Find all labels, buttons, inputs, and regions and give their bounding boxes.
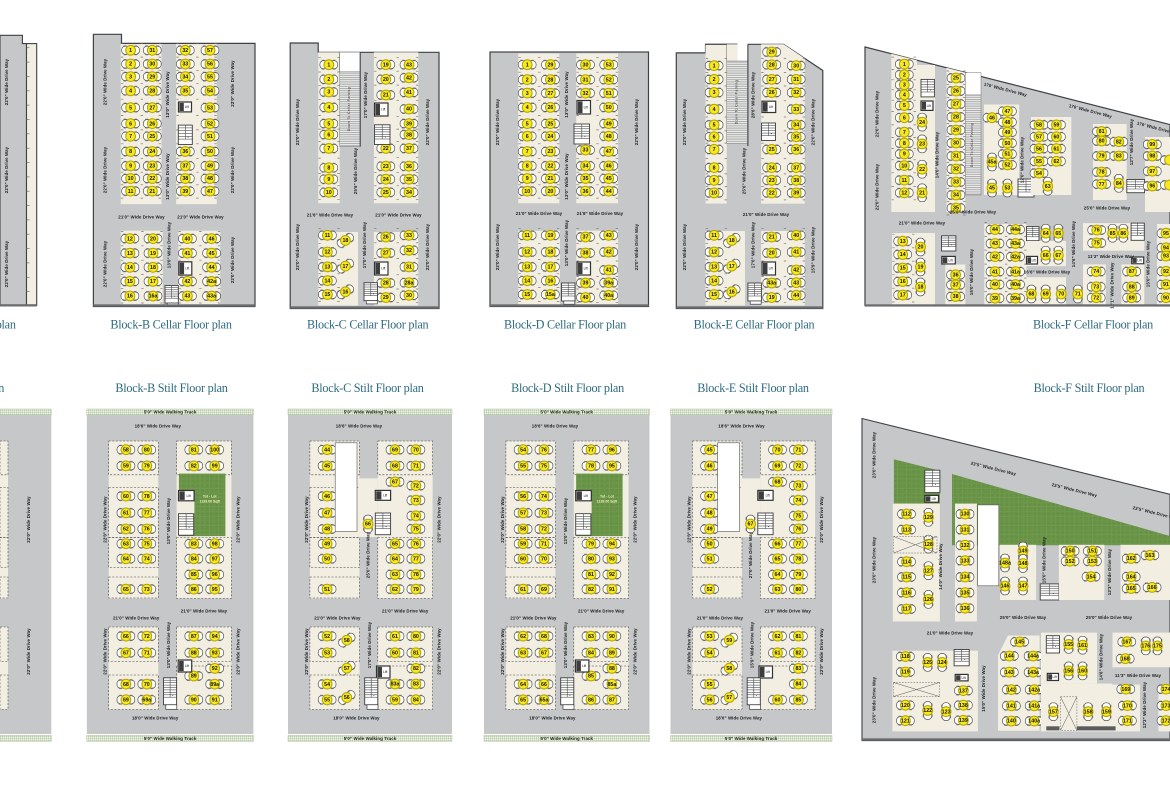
svg-text:83: 83 [588,634,594,640]
svg-text:149: 149 [1019,549,1028,555]
svg-text:164: 164 [1127,574,1136,580]
svg-text:45: 45 [209,251,215,257]
svg-text:26: 26 [769,90,775,96]
svg-text:22'0" Wide Drive Way: 22'0" Wide Drive Way [500,496,505,543]
svg-text:54: 54 [707,651,713,657]
svg-text:4: 4 [903,93,906,99]
svg-text:51: 51 [207,134,213,140]
svg-text:95: 95 [212,587,218,593]
svg-text:18'6" Wide Drive Way: 18'6" Wide Drive Way [135,423,182,428]
svg-text:93: 93 [212,651,218,657]
svg-text:94: 94 [609,541,615,547]
svg-text:Lift: Lift [1137,259,1141,263]
svg-text:Lift: Lift [185,267,189,271]
svg-text:19: 19 [383,62,389,68]
svg-text:Lift: Lift [584,267,588,271]
svg-text:6: 6 [129,121,132,127]
svg-text:24: 24 [769,165,775,171]
svg-text:3: 3 [713,90,716,96]
svg-text:64: 64 [520,682,526,688]
svg-text:82: 82 [191,464,197,470]
svg-text:22'0" Wide Drive Way: 22'0" Wide Drive Way [819,628,824,675]
svg-text:15: 15 [711,292,717,298]
svg-text:131: 131 [961,527,970,533]
svg-text:49: 49 [324,541,330,547]
svg-text:22'0" Wide Drive Way: 22'0" Wide Drive Way [103,146,108,193]
svg-text:22'0" Wide Drive Way: 22'0" Wide Drive Way [682,223,687,270]
svg-text:118: 118 [901,654,910,660]
svg-text:159: 159 [1102,709,1111,715]
svg-text:37: 37 [953,283,959,289]
svg-text:17'0" Wide Drive Way: 17'0" Wide Drive Way [367,621,372,668]
svg-text:30: 30 [793,63,799,69]
svg-text:162: 162 [1127,556,1136,562]
svg-text:165: 165 [1127,586,1136,592]
svg-text:55: 55 [1036,159,1042,165]
svg-text:117: 117 [902,607,911,613]
svg-text:18: 18 [918,285,924,291]
svg-text:4: 4 [327,105,330,111]
svg-text:23: 23 [547,149,553,155]
svg-text:64: 64 [123,557,129,563]
svg-text:89: 89 [1129,295,1135,301]
svg-text:70: 70 [144,682,150,688]
svg-text:36: 36 [953,273,959,279]
svg-text:12'3" Wide Drive Way: 12'3" Wide Drive Way [1107,548,1112,595]
svg-text:10: 10 [524,189,530,195]
svg-text:145: 145 [1015,640,1024,646]
svg-text:72: 72 [413,483,419,489]
svg-text:22'0" Wide Drive Way: 22'0" Wide Drive Way [235,628,240,675]
svg-text:76: 76 [541,447,547,453]
svg-text:69: 69 [123,698,129,704]
svg-text:158: 158 [1084,709,1093,715]
svg-text:68: 68 [392,464,398,470]
svg-text:13: 13 [711,265,717,271]
svg-text:14: 14 [524,278,530,284]
svg-text:Down To Cellar Parking: Down To Cellar Parking [347,87,351,131]
svg-text:79: 79 [1099,154,1105,160]
svg-text:12: 12 [524,250,530,256]
svg-text:31: 31 [953,154,959,160]
svg-text:14'6" Wide Drive Way: 14'6" Wide Drive Way [1098,633,1103,680]
svg-text:13'0" Wide Drive Way: 13'0" Wide Drive Way [165,153,170,200]
svg-text:41: 41 [793,250,799,256]
svg-text:69: 69 [392,447,398,453]
svg-text:54: 54 [324,682,330,688]
svg-text:81: 81 [1099,129,1105,135]
svg-text:51: 51 [324,587,330,593]
svg-text:69: 69 [1043,292,1049,298]
svg-text:25'6" Wide Drive Way: 25'6" Wide Drive Way [742,147,747,194]
svg-text:21: 21 [547,176,553,182]
svg-text:40: 40 [406,107,412,113]
svg-text:58: 58 [726,666,732,672]
svg-text:15: 15 [127,279,133,285]
svg-text:5: 5 [327,121,330,127]
svg-text:55: 55 [707,682,713,688]
svg-text:18'0" Wide Drive Way: 18'0" Wide Drive Way [132,716,179,721]
svg-text:75: 75 [795,514,801,520]
svg-text:1: 1 [526,62,529,68]
svg-text:72: 72 [795,464,801,470]
svg-text:85: 85 [191,572,197,578]
svg-text:81: 81 [191,447,197,453]
svg-text:68: 68 [1028,292,1034,298]
svg-text:22'0" Wide Drive Way: 22'0" Wide Drive Way [235,496,240,543]
svg-text:96: 96 [609,447,615,453]
svg-text:39a: 39a [1011,296,1020,302]
svg-text:80: 80 [795,587,801,593]
svg-text:47: 47 [207,189,213,195]
svg-text:94: 94 [1163,246,1169,252]
svg-text:38: 38 [953,294,959,300]
svg-text:63: 63 [775,587,781,593]
svg-text:42: 42 [992,254,998,260]
svg-text:Lift: Lift [584,494,588,498]
svg-text:22'0" Wide Drive Way: 22'0" Wide Drive Way [4,240,9,287]
svg-text:16: 16 [729,290,735,296]
svg-text:61: 61 [775,651,781,657]
svg-text:22'0" Wide Drive Way: 22'0" Wide Drive Way [634,98,639,145]
svg-text:25: 25 [547,121,553,127]
svg-text:21'0" Wide Drive Way: 21'0" Wide Drive Way [743,212,790,217]
svg-text:34: 34 [182,74,188,80]
svg-text:82: 82 [1116,139,1122,145]
svg-text:22'0" Wide Drive Way: 22'0" Wide Drive Way [26,628,31,675]
svg-text:40: 40 [992,282,998,288]
svg-text:34: 34 [793,123,799,129]
svg-text:13'0" Wide Drive Way: 13'0" Wide Drive Way [166,621,171,668]
svg-text:7: 7 [713,147,716,153]
svg-text:21'0" Wide Drive Way: 21'0" Wide Drive Way [578,609,625,614]
svg-text:2: 2 [526,77,529,83]
svg-text:22'0" Wide Drive Way: 22'0" Wide Drive Way [500,628,505,675]
svg-text:48: 48 [324,527,330,533]
svg-text:16: 16 [342,290,348,296]
svg-text:100: 100 [210,447,219,453]
svg-text:22'0" Wide Drive Way: 22'0" Wide Drive Way [686,496,691,543]
svg-text:87: 87 [609,698,615,704]
svg-text:1: 1 [713,63,716,69]
svg-text:166: 166 [1148,585,1157,591]
svg-text:57: 57 [1036,135,1042,141]
svg-text:84: 84 [413,698,419,704]
svg-text:17: 17 [900,293,906,299]
svg-text:76: 76 [144,527,150,533]
svg-text:21'0" Wide Drive Way: 21'0" Wide Drive Way [697,615,744,620]
svg-text:146: 146 [1001,584,1010,590]
svg-text:25'0" Wide Drive Way: 25'0" Wide Drive Way [1000,615,1047,620]
svg-text:63: 63 [123,541,129,547]
svg-text:Lift: Lift [383,494,387,498]
svg-text:28: 28 [953,115,959,121]
svg-text:35: 35 [406,177,412,183]
svg-text:12: 12 [711,250,717,256]
svg-text:27: 27 [953,102,959,108]
svg-text:78: 78 [795,557,801,563]
svg-text:32: 32 [406,248,412,254]
svg-text:54: 54 [1036,171,1042,177]
svg-text:10: 10 [326,190,332,196]
svg-text:83a: 83a [391,682,400,688]
svg-text:70: 70 [541,557,547,563]
svg-text:42a: 42a [1011,254,1020,260]
svg-text:84: 84 [1116,181,1122,187]
svg-text:Down To Cellar Parking: Down To Cellar Parking [970,123,974,167]
svg-text:57: 57 [520,511,526,517]
svg-text:41: 41 [406,90,412,96]
svg-text:20: 20 [547,189,553,195]
svg-text:5: 5 [713,123,716,129]
svg-text:48: 48 [606,134,612,140]
svg-text:Block-B Cellar Floor plan: Block-B Cellar Floor plan [110,318,232,332]
svg-text:84: 84 [795,682,801,688]
svg-text:36: 36 [793,147,799,153]
svg-text:60: 60 [123,494,129,500]
svg-text:90: 90 [1163,295,1169,301]
svg-text:Block-A Cellar Floor plan: Block-A Cellar Floor plan [0,318,16,332]
svg-text:96: 96 [1149,184,1155,190]
svg-text:5'0" Wide Walking Track: 5'0" Wide Walking Track [541,409,594,414]
svg-text:51: 51 [606,91,612,97]
svg-text:17: 17 [547,265,553,271]
svg-text:55: 55 [520,464,526,470]
svg-text:91: 91 [1163,282,1169,288]
svg-text:17: 17 [150,279,156,285]
svg-text:80: 80 [588,557,594,563]
svg-text:18'0" Wide Drive Way: 18'0" Wide Drive Way [529,716,576,721]
svg-text:34: 34 [406,190,412,196]
svg-text:44: 44 [324,447,330,453]
svg-text:98: 98 [1149,154,1155,160]
svg-text:17: 17 [729,264,735,270]
svg-text:136: 136 [961,606,970,612]
svg-text:40: 40 [583,295,589,301]
svg-text:71: 71 [144,651,150,657]
svg-text:Lift: Lift [584,106,588,110]
svg-text:91: 91 [212,698,218,704]
svg-text:88: 88 [609,666,615,672]
svg-text:71: 71 [795,447,801,453]
svg-text:21: 21 [919,191,925,197]
svg-text:Lift: Lift [381,108,385,112]
svg-text:3: 3 [327,90,330,96]
svg-text:59: 59 [1053,123,1059,129]
svg-text:73: 73 [1093,285,1099,291]
svg-text:93: 93 [609,557,615,563]
svg-text:63: 63 [392,572,398,578]
svg-text:2: 2 [713,77,716,83]
svg-text:68: 68 [541,634,547,640]
svg-text:34: 34 [953,193,959,199]
svg-text:12'0" Wide Drive Way: 12'0" Wide Drive Way [1020,136,1025,183]
svg-text:18'6" Wide Drive Way: 18'6" Wide Drive Way [532,423,579,428]
svg-text:54: 54 [207,89,213,95]
svg-text:153: 153 [1088,559,1097,565]
svg-text:35: 35 [583,176,589,182]
svg-text:36: 36 [406,164,412,170]
svg-text:86: 86 [1120,231,1126,237]
svg-text:14'0" Wide Drive Way: 14'0" Wide Drive Way [935,131,940,178]
svg-text:83: 83 [795,666,801,672]
svg-text:39: 39 [182,189,188,195]
svg-text:25'0" Wide Drive Way: 25'0" Wide Drive Way [366,531,371,578]
svg-text:43: 43 [406,62,412,68]
svg-text:21'8" Wide Drive Way: 21'8" Wide Drive Way [577,211,624,216]
svg-text:69: 69 [541,587,547,593]
svg-text:21'0" Wide Drive Way: 21'0" Wide Drive Way [382,609,429,614]
svg-text:50: 50 [707,541,713,547]
svg-text:168: 168 [1121,656,1130,662]
svg-text:30: 30 [406,293,412,299]
svg-text:86: 86 [588,698,594,704]
svg-text:22'0" Wide Drive Way: 22'0" Wide Drive Way [295,98,300,145]
svg-text:67: 67 [748,522,754,528]
svg-text:76: 76 [413,541,419,547]
svg-text:45a: 45a [988,160,997,166]
svg-text:50: 50 [324,557,330,563]
svg-text:Lift: Lift [186,494,190,498]
svg-text:21'0" Wide Drive Way: 21'0" Wide Drive Way [314,615,361,620]
svg-text:66: 66 [123,634,129,640]
svg-text:35: 35 [793,135,799,141]
svg-text:24: 24 [547,134,553,140]
svg-text:97: 97 [212,557,218,563]
svg-text:15'0" Wide Drive Way: 15'0" Wide Drive Way [1042,536,1047,583]
svg-text:87: 87 [191,634,197,640]
svg-text:122: 122 [923,708,932,714]
svg-text:43a: 43a [207,294,216,300]
svg-text:56: 56 [707,698,713,704]
svg-text:29: 29 [383,295,389,301]
svg-text:Lift: Lift [185,664,189,668]
svg-text:52: 52 [1004,163,1010,169]
svg-text:18: 18 [547,250,553,256]
svg-text:64: 64 [775,572,781,578]
svg-text:6: 6 [526,134,529,140]
svg-text:62: 62 [520,634,526,640]
svg-text:25: 25 [149,134,155,140]
svg-text:12: 12 [127,236,133,242]
svg-text:22: 22 [769,191,775,197]
svg-text:73: 73 [413,498,419,504]
svg-text:13: 13 [524,265,530,271]
svg-text:22'0" Wide Drive Way: 22'0" Wide Drive Way [633,496,638,543]
svg-text:23'0" Wide Drive Way: 23'0" Wide Drive Way [872,676,877,723]
svg-text:22'0" Wide Drive Way: 22'0" Wide Drive Way [103,628,108,675]
svg-text:5'0" Wide Walking Track: 5'0" Wide Walking Track [144,409,197,414]
svg-text:49: 49 [707,527,713,533]
svg-text:25'6" Wide Drive Way: 25'6" Wide Drive Way [353,147,358,194]
svg-text:74: 74 [413,514,419,520]
svg-text:2: 2 [327,77,330,83]
svg-text:27: 27 [149,105,155,111]
svg-text:90: 90 [191,698,197,704]
svg-text:142a: 142a [1028,687,1040,693]
svg-text:60: 60 [775,698,781,704]
svg-text:139: 139 [959,718,968,724]
svg-text:15'9" Wide Drive Way: 15'9" Wide Drive Way [811,226,816,273]
svg-text:21'0" Wide Drive Way: 21'0" Wide Drive Way [927,631,974,636]
svg-text:20: 20 [383,77,389,83]
svg-text:14: 14 [127,265,133,271]
svg-text:172: 172 [1162,718,1170,724]
svg-text:25'0" Wide Drive Way: 25'0" Wide Drive Way [1084,206,1131,211]
svg-text:Tot - Lot: Tot - Lot [203,494,218,498]
svg-text:70: 70 [775,447,781,453]
svg-text:12'7" Wide Drive Way: 12'7" Wide Drive Way [1129,118,1134,165]
svg-text:15'9" Wide Drive Way: 15'9" Wide Drive Way [750,621,755,668]
svg-text:13'0" Wide Drive Way: 13'0" Wide Drive Way [165,71,170,118]
svg-text:75: 75 [144,541,150,547]
svg-text:23: 23 [149,164,155,170]
svg-text:28: 28 [769,63,775,69]
svg-text:11: 11 [524,233,530,239]
svg-text:Block-D Stilt Floor plan: Block-D Stilt Floor plan [511,381,624,395]
svg-text:22'0" Wide Drive Way: 22'0" Wide Drive Way [230,60,235,107]
svg-text:21: 21 [149,189,155,195]
svg-text:15a: 15a [546,292,555,298]
svg-text:5: 5 [903,103,906,109]
svg-text:72: 72 [144,634,150,640]
svg-text:160: 160 [1078,669,1087,675]
svg-text:15'0" Wide Drive Way: 15'0" Wide Drive Way [969,248,974,295]
svg-text:23'0" Wide Drive Way: 23'0" Wide Drive Way [872,536,877,583]
svg-text:37: 37 [406,146,412,152]
svg-text:83: 83 [191,541,197,547]
svg-text:22'0" Wide Drive Way: 22'0" Wide Drive Way [686,628,691,675]
svg-text:22'0" Wide Drive Way: 22'0" Wide Drive Way [437,628,442,675]
svg-text:13'0" Wide Drive Way: 13'0" Wide Drive Way [564,219,569,266]
svg-text:18: 18 [150,265,156,271]
svg-text:21'0" Wide Drive Way: 21'0" Wide Drive Way [375,213,422,218]
svg-text:Lift: Lift [766,494,770,498]
svg-text:115: 115 [902,575,911,581]
svg-text:67: 67 [1055,253,1061,259]
svg-text:81: 81 [795,634,801,640]
svg-text:Lift: Lift [383,670,387,674]
svg-text:57: 57 [344,666,350,672]
svg-text:151: 151 [1088,549,1097,555]
svg-text:9: 9 [327,177,330,183]
svg-text:73: 73 [144,587,150,593]
svg-text:22'0" Wide Drive Way: 22'0" Wide Drive Way [304,628,309,675]
svg-text:78: 78 [413,572,419,578]
svg-text:99: 99 [1149,142,1155,148]
svg-text:71: 71 [541,541,547,547]
svg-text:42a: 42a [207,279,216,285]
svg-text:71: 71 [1075,292,1081,298]
svg-text:142: 142 [1007,687,1016,693]
svg-text:17'0" Wide Drive Way: 17'0" Wide Drive Way [362,221,367,268]
svg-text:Lift: Lift [961,676,965,680]
svg-text:79: 79 [588,541,594,547]
svg-text:18'6" Wide Drive Way: 18'6" Wide Drive Way [718,423,765,428]
svg-text:16'6" Wide Drive Way: 16'6" Wide Drive Way [1024,270,1071,275]
svg-text:3: 3 [129,74,132,80]
svg-text:23'0" Wide Drive Way: 23'0" Wide Drive Way [872,431,877,478]
svg-text:17'0" Wide Drive Way: 17'0" Wide Drive Way [363,71,368,118]
svg-text:43: 43 [184,294,190,300]
svg-text:33: 33 [953,180,959,186]
svg-text:42: 42 [793,268,799,274]
svg-text:83: 83 [1116,154,1122,160]
svg-text:36: 36 [182,149,188,155]
svg-text:39a: 39a [604,280,613,286]
svg-text:46: 46 [324,494,330,500]
svg-text:77: 77 [413,557,419,563]
